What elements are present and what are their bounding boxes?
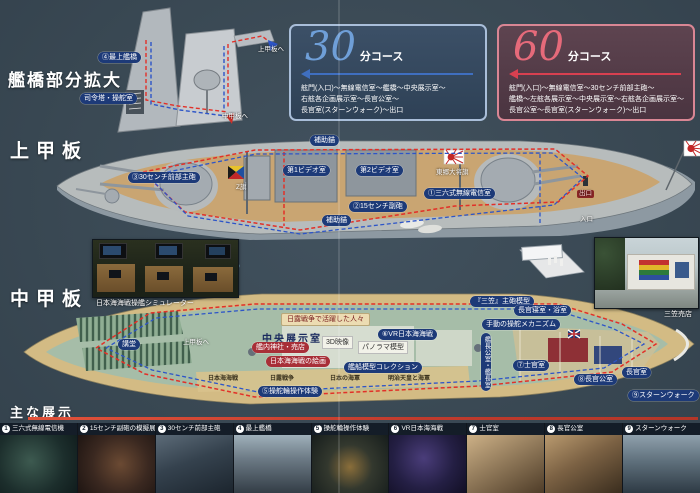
legend-num-6: 6 xyxy=(391,425,399,433)
course-30-header: 30分コース xyxy=(291,28,485,66)
shop-caption: 三笠売店 xyxy=(664,309,692,319)
legend-label-4: 最上艦橋 xyxy=(246,423,272,435)
union-jack-flag xyxy=(568,330,580,338)
legend-photo-stern-walk xyxy=(623,435,700,493)
label-admiral-bedroom-bath: 長官寝室・浴室 xyxy=(514,305,571,316)
legend-label-2: 15センチ副砲の模擬展示 xyxy=(90,423,155,435)
legend-label-8: 長官公室 xyxy=(557,423,583,435)
label-entrance: 入口 xyxy=(580,216,593,224)
legend-photo-15cm-gun xyxy=(78,435,155,493)
fold-crease xyxy=(338,0,340,493)
label-top-bridge: ④最上艦橋 xyxy=(98,52,141,63)
legend-label-6: VR日本海海戦 xyxy=(401,423,443,435)
course-60min-box: 60分コース 舷門(入口)〜無線電信室〜30センチ前部主砲〜 艦橋〜左舷各展示室… xyxy=(497,24,695,121)
course-60-arrow xyxy=(509,69,683,79)
shop-photo xyxy=(594,237,699,309)
course-30min-box: 30分コース 舷門(入口)〜無線電信室〜艦橋〜中央展示室〜 右舷各企画展示室〜長… xyxy=(289,24,487,121)
course-30-route-line2: 右舷各企画展示室〜長官公室〜 xyxy=(301,94,477,105)
legend-item-7: 7士官室 xyxy=(467,423,544,493)
label-to-middle-deck: 中甲板へ xyxy=(222,113,248,121)
label-manual-steering-mechanism: 手動の操舵メカニズム xyxy=(482,319,560,330)
label-video-room-2: 第2ビデオ室 xyxy=(356,165,403,176)
legend-item-5: 5操舵輪操作体験 xyxy=(312,423,389,493)
legend-label-3: 30センチ前部主砲 xyxy=(168,423,221,435)
label-stern-walk: ⑨スターンウォーク xyxy=(628,390,699,401)
course-60-header: 60分コース xyxy=(499,28,693,66)
exhibit-legend-row: 1三六式無線電信機 215センチ副砲の模擬展示 330センチ前部主砲 4最上艦橋… xyxy=(0,423,700,493)
label-conning-tower: 司令塔・操舵室 xyxy=(80,93,137,104)
label-auxiliary-anchor-top: 補助錨 xyxy=(310,135,339,146)
label-wireless-room: ①三六式無線電信室 xyxy=(424,188,495,199)
legend-num-8: 8 xyxy=(547,425,555,433)
monitor xyxy=(99,243,127,259)
legend-item-8: 8長官公室 xyxy=(545,423,622,493)
gangway-ramp xyxy=(520,245,584,278)
course-30-route-line1: 舷門(入口)〜無線電信室〜艦橋〜中央展示室〜 xyxy=(301,83,477,94)
legend-item-6: 6VR日本海海戦 xyxy=(389,423,466,493)
togo-admiral-flag xyxy=(444,150,464,164)
label-fore-main-gun: ③30センチ前部主砲 xyxy=(128,172,200,183)
legend-num-9: 9 xyxy=(625,425,633,433)
legend-photo-officers-room xyxy=(467,435,544,493)
legend-item-9: 9スターンウォーク xyxy=(623,423,700,493)
label-admiral-public-room: ⑧長官公室 xyxy=(574,374,617,385)
legend-photo-admiral-room xyxy=(545,435,622,493)
course-60-number: 60 xyxy=(513,24,564,70)
legend-photo-wireless-room xyxy=(0,435,77,493)
label-z-flag: Z旗 xyxy=(236,184,246,192)
legend-label-9: スターンウォーク xyxy=(635,423,687,435)
legend-item-1: 1三六式無線電信機 xyxy=(0,423,77,493)
tree xyxy=(595,238,625,290)
legend-num-2: 2 xyxy=(80,425,88,433)
simulator-photo xyxy=(92,239,239,298)
monitor xyxy=(155,243,183,259)
label-vr-battle: ⑥VR日本海海戦 xyxy=(378,329,437,340)
label-togo-flag: 東郷大将旗 xyxy=(436,169,469,177)
label-auxiliary-anchor-bottom: 補助錨 xyxy=(322,215,351,226)
legend-num-3: 3 xyxy=(158,425,166,433)
label-video-room-1: 第1ビデオ室 xyxy=(283,165,330,176)
legend-photo-top-bridge xyxy=(234,435,311,493)
legend-photo-steering xyxy=(312,435,389,493)
legend-photo-vr-battle xyxy=(389,435,466,493)
label-to-upper-deck-stairs: 上甲板へ xyxy=(183,339,209,347)
course-60-route: 舷門(入口)〜無線電信室〜30センチ前部主砲〜 艦橋〜左舷各展示室〜中央展示室〜… xyxy=(499,81,693,117)
exhibits-divider xyxy=(28,417,698,420)
label-officers-room: ⑦士官室 xyxy=(513,360,549,371)
legend-num-7: 7 xyxy=(469,425,477,433)
label-sea-of-japan-battle: 日本海海戦 xyxy=(208,376,238,383)
label-captain-rooms: 艦長公室・艦長室 xyxy=(481,333,491,391)
monitor xyxy=(205,244,231,259)
console-booth xyxy=(97,264,135,292)
legend-item-4: 4最上艦橋 xyxy=(234,423,311,493)
label-ship-model-collection: 艦船模型コレクション xyxy=(344,362,422,373)
legend-num-1: 1 xyxy=(2,425,10,433)
course-30-arrow xyxy=(301,69,475,79)
label-japanese-navy: 日本の海軍 xyxy=(330,376,360,383)
upper-deck-title: 上甲板 xyxy=(10,136,88,163)
course-30-number: 30 xyxy=(305,24,356,70)
simulator-caption: 日本海海戦操艦シミュレーター xyxy=(96,298,194,308)
admiral-salon-carpet xyxy=(548,338,588,362)
label-battle-paintings: 日本海海戦の絵画 xyxy=(266,356,330,367)
course-60-unit: 分コース xyxy=(568,51,611,63)
legend-num-4: 4 xyxy=(236,425,244,433)
legend-label-5: 操舵輪操作体験 xyxy=(324,423,370,435)
course-60-route-line3: 長官公室〜長官室(スターンウォーク)〜出口 xyxy=(509,105,685,116)
label-exit: 出口 xyxy=(577,190,594,198)
legend-item-2: 215センチ副砲の模擬展示 xyxy=(78,423,155,493)
legend-label-1: 三六式無線電信機 xyxy=(12,423,64,435)
label-to-upper-deck: 上甲板へ xyxy=(258,46,284,54)
course-30-route-line3: 長官室(スターンウォーク)〜出口 xyxy=(301,105,477,116)
course-30-route: 舷門(入口)〜無線電信室〜艦橋〜中央展示室〜 右舷各企画展示室〜長官公室〜 長官… xyxy=(291,81,485,117)
label-emperor-navy: 明治天皇と海軍 xyxy=(388,376,430,383)
course-60-route-line2: 艦橋〜左舷各展示室〜中央展示室〜右舷各企画展示室〜 xyxy=(509,94,685,105)
label-ship-shrine-shop: 艦内神社・売店 xyxy=(252,342,309,353)
label-russo-japanese-war-people: 日露戦争で活躍した人々 xyxy=(281,313,370,326)
course-30-unit: 分コース xyxy=(360,51,403,63)
label-steering-experience: ⑤操舵輪操作体験 xyxy=(258,386,322,397)
middle-deck-title: 中甲板 xyxy=(10,284,88,311)
label-lecture-hall: 講堂 xyxy=(118,339,140,350)
legend-photo-30cm-gun xyxy=(156,435,233,493)
legend-num-5: 5 xyxy=(314,425,322,433)
label-panorama-model: パノラマ模型 xyxy=(358,341,408,354)
bridge-section-title: 艦橋部分拡大 xyxy=(8,66,122,91)
label-admiral-room: 長官室 xyxy=(622,367,651,378)
label-russo-japanese-war: 日露戦争 xyxy=(270,376,294,383)
mikasa-deck-guide-map: 日本海海戦操艦シミュレーター 三笠売店 艦橋部分拡大 上甲板 中甲板 主な展示 … xyxy=(0,0,700,493)
course-60-route-line1: 舷門(入口)〜無線電信室〜30センチ前部主砲〜 xyxy=(509,83,685,94)
legend-label-7: 士官室 xyxy=(479,423,499,435)
bridge-inset-drawing xyxy=(118,8,278,132)
label-15cm-secondary-gun: ②15センチ副砲 xyxy=(349,201,407,212)
legend-item-3: 330センチ前部主砲 xyxy=(156,423,233,493)
